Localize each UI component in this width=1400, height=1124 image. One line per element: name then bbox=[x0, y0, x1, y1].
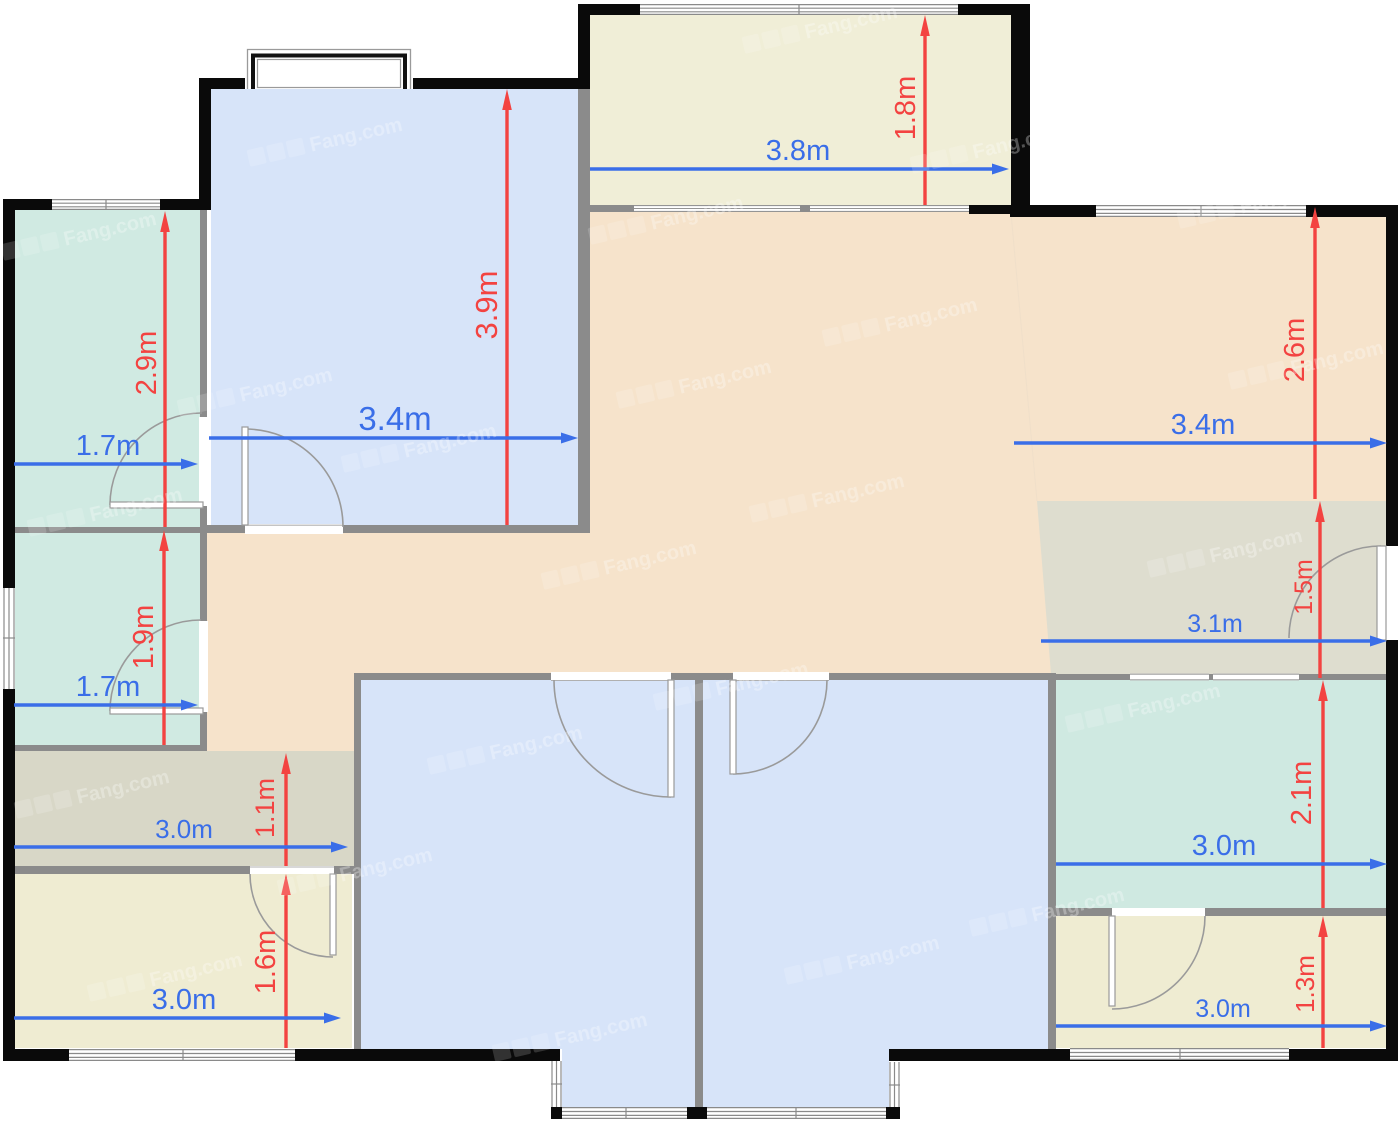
svg-text:1.9m: 1.9m bbox=[128, 605, 160, 669]
svg-text:3.0m: 3.0m bbox=[1192, 830, 1256, 862]
svg-text:1.3m: 1.3m bbox=[1290, 955, 1320, 1013]
svg-text:3.8m: 3.8m bbox=[766, 135, 830, 167]
svg-text:3.4m: 3.4m bbox=[358, 400, 431, 437]
svg-text:1.1m: 1.1m bbox=[250, 778, 280, 838]
svg-text:1.7m: 1.7m bbox=[76, 430, 140, 462]
svg-text:2.1m: 2.1m bbox=[1286, 761, 1318, 825]
svg-text:3.9m: 3.9m bbox=[469, 271, 504, 340]
svg-text:1.5m: 1.5m bbox=[1290, 559, 1318, 615]
svg-text:3.4m: 3.4m bbox=[1171, 409, 1235, 441]
svg-text:1.6m: 1.6m bbox=[250, 930, 282, 994]
svg-text:1.8m: 1.8m bbox=[890, 76, 922, 140]
svg-text:3.0m: 3.0m bbox=[155, 814, 213, 844]
svg-text:3.0m: 3.0m bbox=[1195, 995, 1251, 1023]
svg-text:1.7m: 1.7m bbox=[76, 671, 140, 703]
svg-text:3.1m: 3.1m bbox=[1187, 610, 1243, 638]
svg-text:2.9m: 2.9m bbox=[131, 331, 163, 395]
